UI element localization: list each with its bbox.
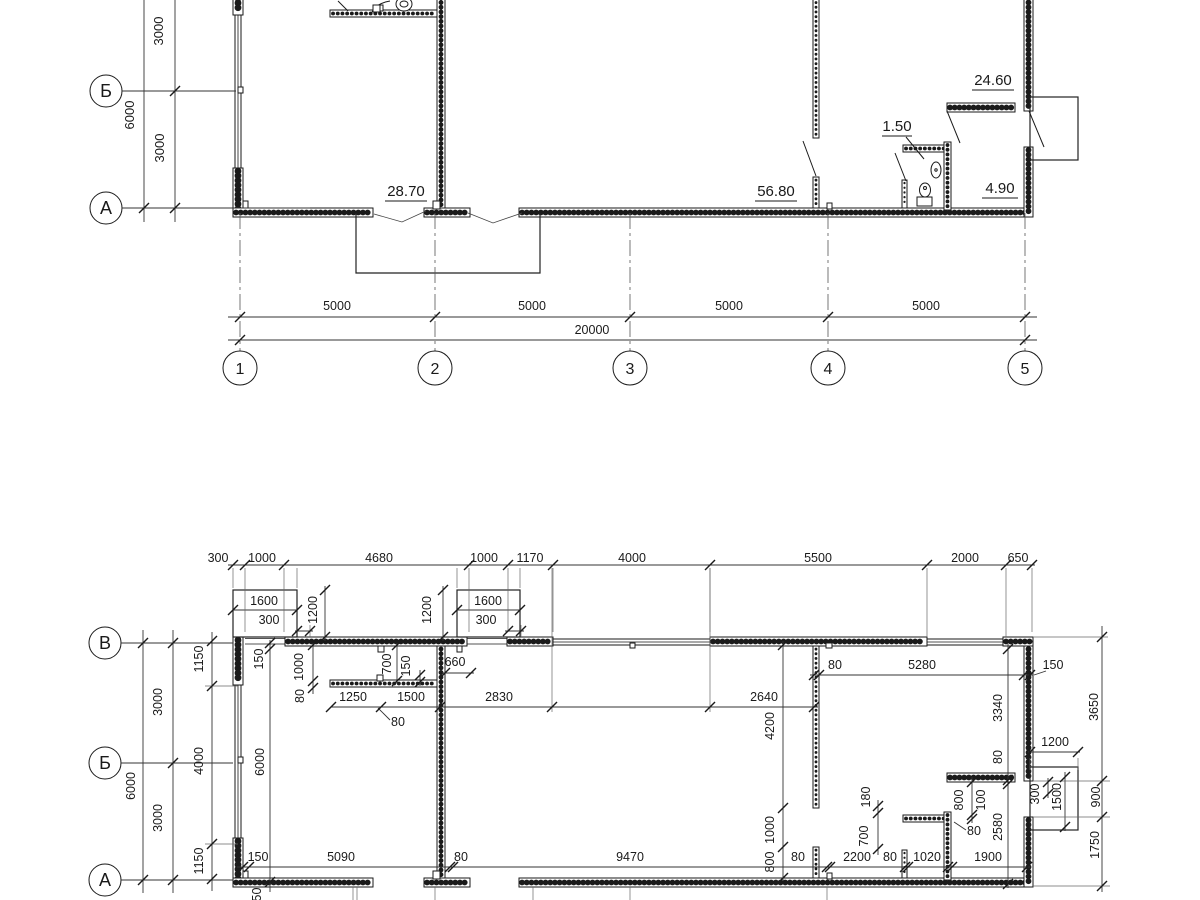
door-jamb	[826, 643, 832, 648]
dimension-label: 80	[883, 850, 897, 864]
row-axis-label: Б	[100, 81, 112, 101]
dimension-label: 6000	[253, 748, 267, 776]
dimension-label: 1000	[470, 551, 498, 565]
door-jamb	[378, 646, 384, 652]
dimension-label: 5000	[323, 299, 351, 313]
wall-segment	[902, 180, 907, 208]
door-jamb	[238, 757, 243, 763]
dimension-label: 80	[967, 824, 981, 838]
dimension-label: 20000	[575, 323, 610, 337]
dimension-label: 1200	[420, 596, 434, 624]
dimension-label: 1500	[1050, 783, 1064, 811]
dimension-label: 6000	[124, 772, 138, 800]
column-axis-bubbles: 1 2 3 4 5	[223, 351, 1042, 385]
room-area-label: 56.80	[757, 183, 795, 200]
dimension-label: 1020	[913, 850, 941, 864]
col-axis-label: 4	[824, 361, 833, 378]
door-jamb	[238, 87, 243, 93]
dimension-label: 1250	[339, 690, 367, 704]
door-leaf	[895, 153, 906, 181]
dimension-label: 3650	[1087, 693, 1101, 721]
col-axis-label: 2	[431, 361, 440, 378]
porch-outline	[356, 213, 540, 273]
dimension-label: 80	[791, 850, 805, 864]
room-area-label: 4.90	[985, 180, 1014, 197]
dimension-label: 4000	[618, 551, 646, 565]
sink-fixture	[931, 162, 941, 178]
dimension-label: 4200	[763, 712, 777, 740]
dimension-label: 150	[250, 888, 264, 900]
architectural-drawing-canvas: 28.70 56.80 1.50 24.60 4.90 Б А 3000 600…	[0, 0, 1200, 900]
building-walls-upper	[233, 0, 1078, 217]
dimension-label: 9470	[616, 850, 644, 864]
dimension-label: 5500	[804, 551, 832, 565]
dimension-label: 1200	[1041, 735, 1069, 749]
door-leaf	[803, 141, 816, 176]
room-area-label: 1.50	[882, 118, 911, 135]
dimension-label: 2580	[991, 813, 1005, 841]
dimension-label: 6000	[122, 101, 137, 130]
col-axis-label: 5	[1021, 361, 1030, 378]
dimension-label: 3000	[152, 134, 167, 163]
dimension-label: 2200	[843, 850, 871, 864]
dimension-label: 80	[391, 715, 405, 729]
dimension-label: 900	[1089, 787, 1103, 808]
door-jamb	[243, 871, 248, 878]
dimension-label: 3000	[151, 804, 165, 832]
row-axis-label: В	[99, 633, 111, 653]
door-jamb	[373, 5, 380, 12]
door-leaf	[947, 111, 960, 143]
dimension-label: 5000	[912, 299, 940, 313]
opening-break-line	[374, 211, 426, 222]
dimension-label: 5090	[327, 850, 355, 864]
door-jamb	[630, 643, 635, 648]
door-jamb	[377, 675, 383, 681]
dimension-label: 80	[828, 658, 842, 672]
dimension-label: 700	[857, 826, 871, 847]
dimension-label: 1000	[248, 551, 276, 565]
toilet-fixture	[917, 183, 932, 206]
dimension-label: 150	[252, 649, 266, 670]
dimension-label: 180	[859, 787, 873, 808]
dimension-label: 300	[259, 613, 280, 627]
dimension-label: 1500	[397, 690, 425, 704]
dimension-label: 150	[1043, 658, 1064, 672]
row-axis-label: А	[100, 198, 112, 218]
dimension-label: 1600	[474, 594, 502, 608]
room-area-label: 24.60	[974, 72, 1012, 89]
dimension-label: 1600	[250, 594, 278, 608]
dimension-label: 660	[445, 655, 466, 669]
dimension-label: 100	[974, 790, 988, 811]
grid-extension-lines	[240, 213, 1025, 351]
lower-dimension-labels: 3001000468010001170400055002000650160030…	[124, 551, 1103, 900]
dimension-ticks	[138, 86, 1107, 891]
col-axis-label: 3	[626, 361, 635, 378]
dimension-label: 800	[952, 790, 966, 811]
dimension-label: 1150	[192, 848, 206, 875]
door-jamb	[433, 871, 440, 879]
wall-segment	[902, 850, 907, 878]
building-walls-lower	[233, 637, 1078, 887]
dimension-label: 80	[454, 850, 468, 864]
dimension-label: 4680	[365, 551, 393, 565]
dimension-label: 5000	[715, 299, 743, 313]
dimension-label: 5280	[908, 658, 936, 672]
dimension-label: 1000	[763, 816, 777, 844]
sink-fixture	[396, 0, 412, 11]
door-jamb	[827, 873, 832, 879]
room-area-label: 28.70	[387, 183, 425, 200]
dimension-label: 1750	[1088, 831, 1102, 859]
dimension-label: 2000	[951, 551, 979, 565]
row-axis-label: А	[99, 870, 111, 890]
dimension-label: 300	[208, 551, 229, 565]
dimension-label: 3000	[151, 688, 165, 716]
dimension-label: 3340	[991, 694, 1005, 722]
dimension-label: 3000	[151, 17, 166, 46]
door-leaf	[1029, 111, 1044, 147]
dimension-label: 1200	[306, 596, 320, 624]
dimension-label: 5000	[518, 299, 546, 313]
door-jamb	[827, 203, 832, 209]
dimension-label: 1170	[517, 551, 544, 565]
floor-plan-drawing: 28.70 56.80 1.50 24.60 4.90 Б А 3000 600…	[0, 0, 1200, 900]
opening-break-line	[468, 213, 522, 223]
dimension-label: 150	[399, 656, 413, 677]
dimension-lines	[143, 565, 1102, 893]
dimension-label: 80	[293, 689, 307, 703]
col-axis-label: 1	[236, 361, 245, 378]
dimension-label: 80	[991, 750, 1005, 764]
dimension-label: 4000	[192, 747, 206, 775]
door-jamb	[457, 646, 462, 652]
door-jamb	[243, 201, 248, 208]
dimension-label: 300	[1028, 784, 1042, 805]
dimension-label: 1150	[192, 646, 206, 673]
dimension-label: 150	[248, 850, 269, 864]
dimension-label: 1900	[974, 850, 1002, 864]
dimension-label: 650	[1008, 551, 1029, 565]
dimension-label: 800	[763, 852, 777, 873]
dimension-label: 700	[380, 654, 394, 675]
dimension-label: 300	[476, 613, 497, 627]
dimension-label: 2830	[485, 690, 513, 704]
dimension-label: 2640	[750, 690, 778, 704]
row-axis-label: Б	[99, 753, 111, 773]
dimension-label: 1000	[292, 653, 306, 681]
annex-outline	[1030, 97, 1078, 160]
door-jamb	[433, 201, 440, 209]
